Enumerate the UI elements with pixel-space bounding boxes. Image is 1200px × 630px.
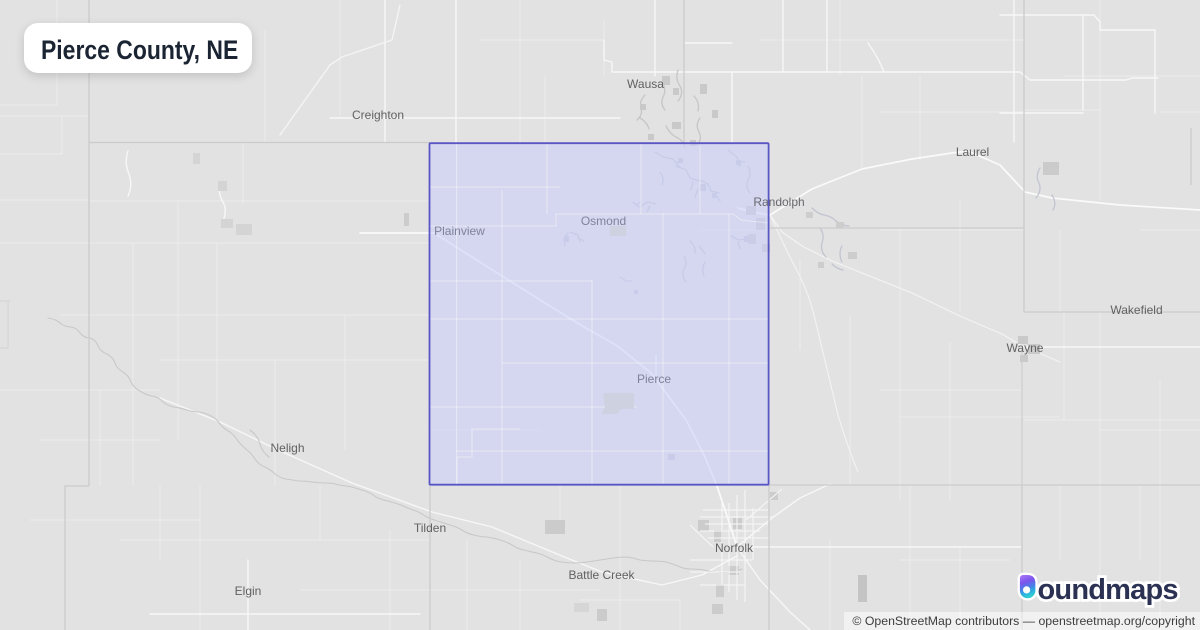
svg-text:Wausa: Wausa <box>627 77 664 91</box>
svg-text:Neligh: Neligh <box>270 441 304 455</box>
svg-text:Pierce: Pierce <box>637 372 671 386</box>
svg-text:Battle Creek: Battle Creek <box>568 568 635 582</box>
svg-text:Tilden: Tilden <box>414 521 446 535</box>
svg-text:Wakefield: Wakefield <box>1110 303 1162 317</box>
svg-text:Norfolk: Norfolk <box>715 541 754 555</box>
svg-text:Randolph: Randolph <box>753 195 804 209</box>
svg-text:Creighton: Creighton <box>352 108 404 122</box>
svg-text:Laurel: Laurel <box>956 145 989 159</box>
svg-text:Wayne: Wayne <box>1007 341 1044 355</box>
svg-text:oundmaps: oundmaps <box>1038 574 1178 606</box>
svg-text:Elgin: Elgin <box>235 584 262 598</box>
svg-text:Osmond: Osmond <box>581 214 626 228</box>
svg-text:Plainview: Plainview <box>434 224 485 238</box>
